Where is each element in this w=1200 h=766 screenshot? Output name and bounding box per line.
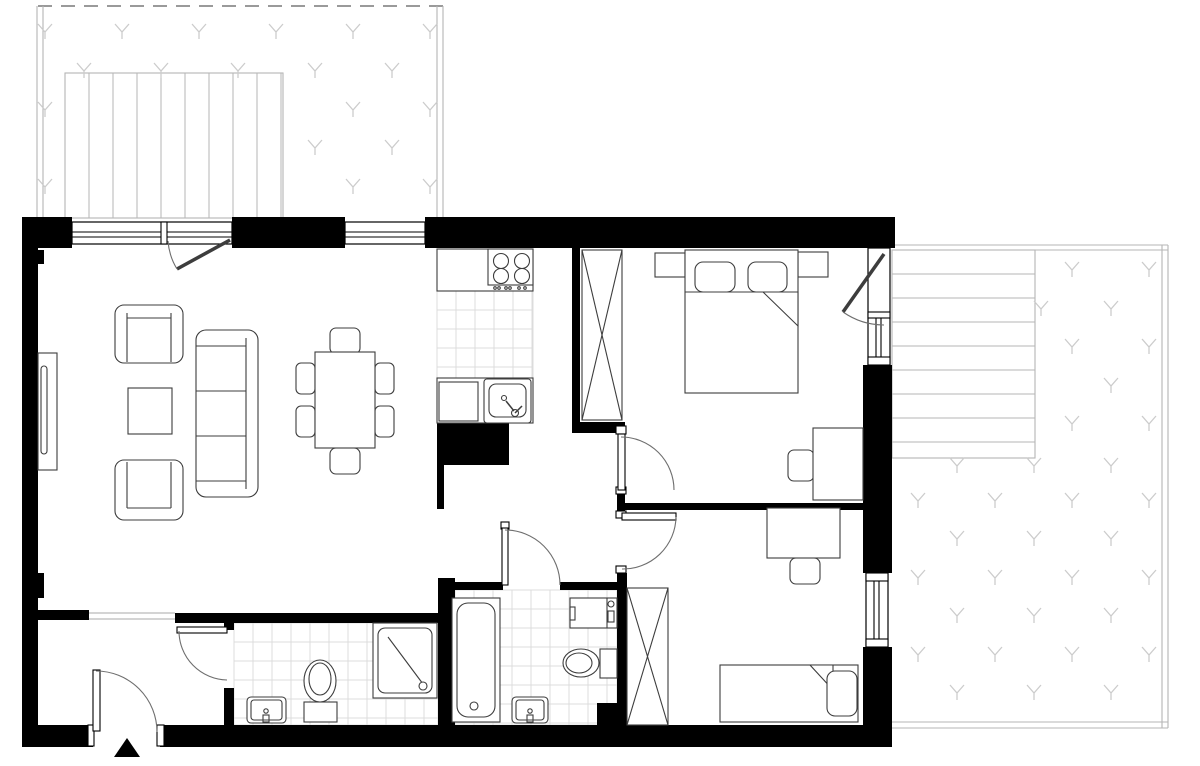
bathroom2-sink-basin [516, 700, 544, 720]
bathroom1-toilet-tank [304, 702, 337, 722]
living-balcony-door-arc [168, 241, 177, 269]
bedroom2-door-leaf [622, 513, 676, 520]
bottom-wall-left [22, 725, 93, 747]
bathroom1-north-wall [175, 613, 440, 623]
bedroom1-pillow-b [748, 262, 787, 292]
terrace-left-deck [65, 73, 283, 218]
sofa [196, 330, 258, 497]
bathroom1-door-arc [179, 631, 227, 680]
dining-chair-north [330, 328, 360, 354]
bathroom1-door-leaf [177, 627, 227, 633]
bedroom1-window-divider-a [868, 312, 890, 318]
bedroom1-pillow-a [695, 262, 735, 292]
bedroom1-nightstand-b [798, 252, 828, 277]
washing-machine [570, 598, 617, 628]
terrace-right-deck [892, 250, 1035, 458]
entry-direction-triangle [114, 738, 140, 757]
entry-partition-wall [37, 610, 89, 620]
left-wall [22, 217, 38, 747]
right-wall-lower [863, 647, 892, 747]
bedroom1-desk-chair [788, 450, 814, 481]
bathroom2-north-wall-w [455, 582, 503, 590]
left-wall-pilaster-b [37, 573, 44, 598]
bottom-wall-main [160, 725, 892, 747]
bedroom2-window-frame [866, 573, 888, 647]
bathroom2-door-leaf [502, 528, 508, 585]
bedroom1-door-leaf [618, 434, 625, 490]
bedroom1-door-cap-a [616, 426, 626, 434]
living-window-mullion [161, 222, 167, 244]
bathroom2-door-arc [505, 530, 560, 585]
kitchen-sink-cabinet [439, 382, 478, 421]
bedroom2-desk-chair [790, 558, 820, 584]
shower-drain [419, 682, 427, 690]
living-window-frame [72, 222, 232, 244]
entry-door-jamb-b [157, 725, 164, 746]
armchair-2 [115, 460, 183, 520]
bedroom2-door-arc [622, 517, 676, 569]
floor-plan-page [0, 0, 1200, 766]
coffee-table [128, 388, 172, 434]
bathtub-inner [457, 603, 495, 717]
dining-chair-west-2 [296, 406, 315, 437]
bathroom1-sink-basin [251, 700, 282, 720]
bedroom1-window-frame [868, 248, 890, 365]
bedroom2-pillow [827, 671, 857, 716]
bedroom2-window-divider-b [866, 639, 888, 647]
bedroom1-desk [813, 428, 863, 500]
right-wall-upper [863, 365, 892, 573]
left-wall-pilaster-a [38, 250, 44, 264]
bedroom2-window-divider-a [866, 573, 888, 581]
kitchen-bedroom1-wall [572, 248, 580, 422]
kitchen-floor-tiles [437, 291, 533, 378]
dining-table [315, 352, 375, 448]
dining-chair-east-2 [375, 406, 394, 437]
entry-door-arc [96, 671, 157, 732]
bathroom2-toilet-tank [600, 649, 617, 678]
hallway-west-wall [437, 423, 509, 465]
dining-chair-west-1 [296, 363, 315, 394]
top-wall-right [425, 217, 895, 248]
kitchen-sink-basin [489, 384, 526, 417]
bedroom1-nightstand-a [655, 253, 685, 277]
tv-screen [41, 366, 47, 454]
dining-chair-south [330, 448, 360, 474]
bathroom2-north-wall-e [560, 582, 617, 590]
dining-chair-east-1 [375, 363, 394, 394]
living-window2-frame [345, 222, 425, 244]
floor-plan-canvas [0, 0, 1200, 766]
bedroom1-window-divider-b [868, 357, 890, 365]
bedroom2-desk [767, 508, 840, 558]
entry-door-leaf [93, 670, 100, 731]
hallway-west-wall-south [437, 465, 444, 509]
top-wall-mid [232, 217, 345, 248]
bathroom2-east-wall-foot [597, 703, 627, 727]
vestibule-south-wall [224, 688, 234, 728]
bedroom1-door-arc [621, 437, 674, 490]
armchair-1 [115, 305, 183, 363]
